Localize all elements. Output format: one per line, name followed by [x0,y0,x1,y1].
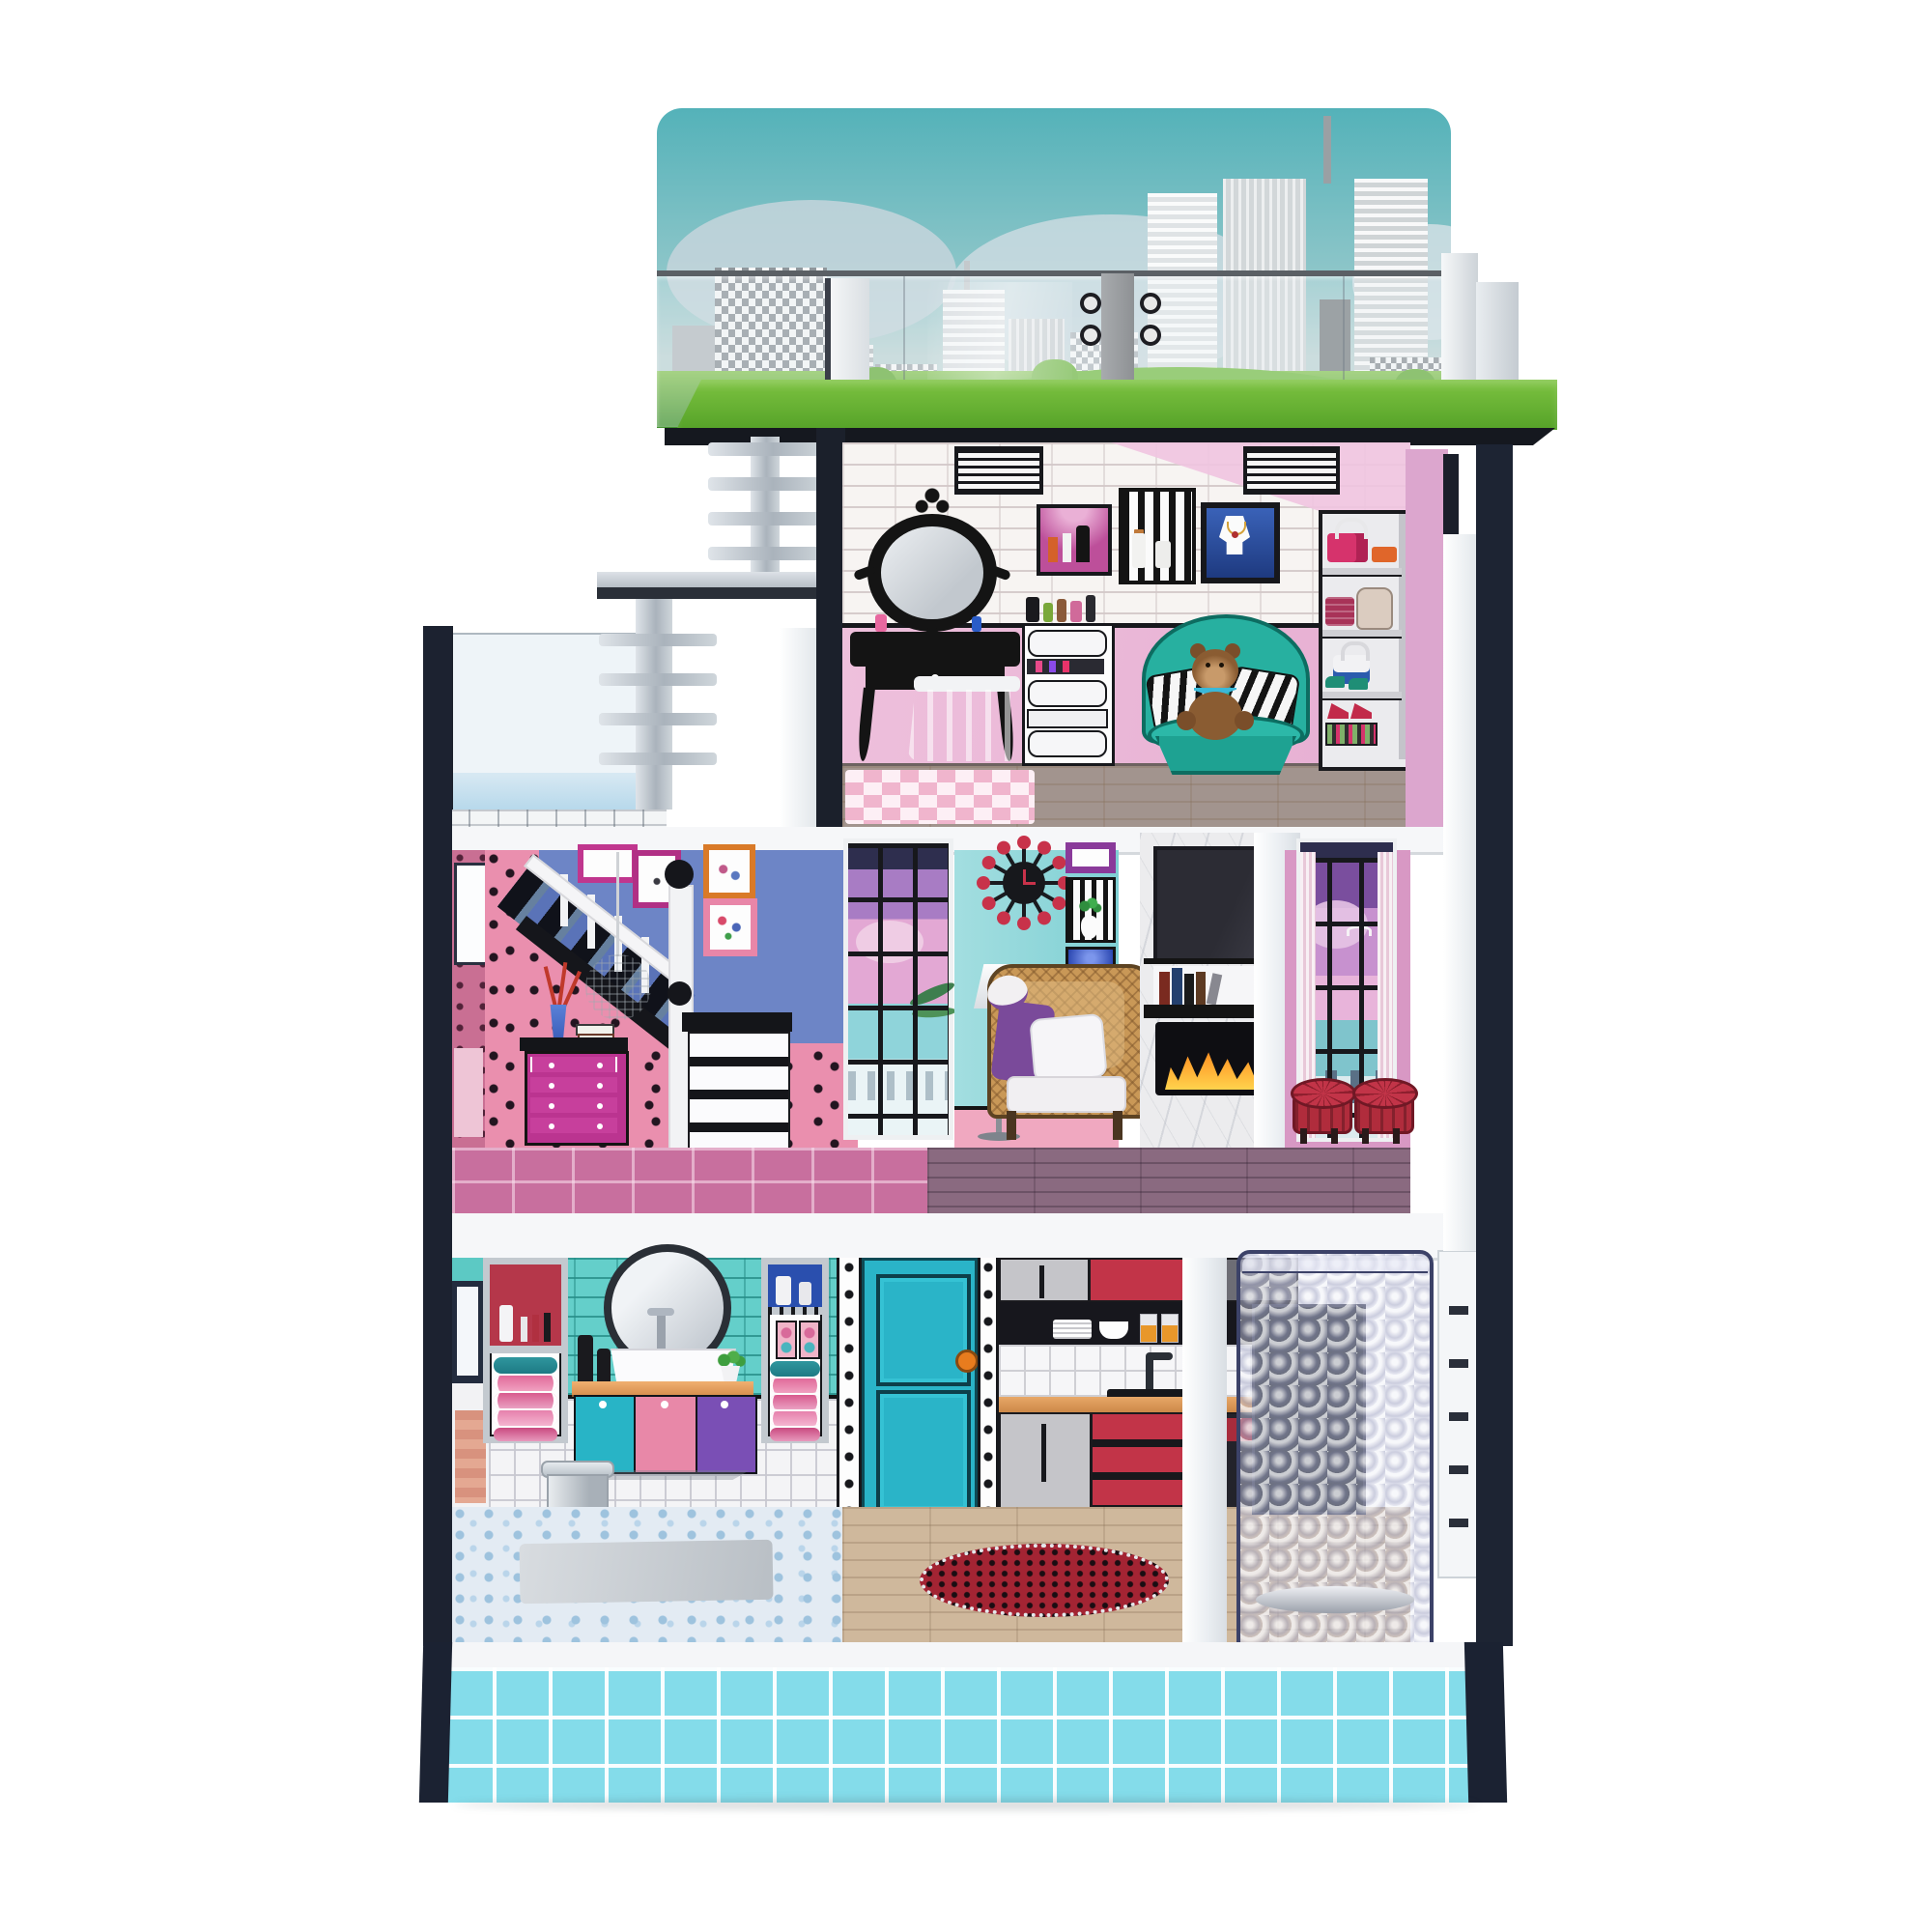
stool-seat [914,676,1020,692]
gate-hinge [1080,293,1101,314]
spray-can [799,1321,820,1359]
spray-can [776,1321,797,1359]
niche-shelf [768,1307,822,1315]
juice-glass [1140,1314,1157,1343]
pendant-cord [616,852,619,956]
toiletry-tube [499,1305,513,1342]
striped-shoebox [1325,723,1378,746]
deck-right-board [780,628,816,835]
perfume-bottle [1076,526,1090,562]
vanity-door-pink [634,1395,697,1474]
checkered-rug [845,770,1035,824]
teddy-eye [1206,663,1210,668]
red-drawers [1090,1414,1196,1507]
towel-roll-teal [770,1361,820,1377]
vanity-door-purple [696,1395,757,1474]
perfume-bottle [1048,537,1058,562]
side-peach-panel [455,1410,486,1503]
landing-platform-edge [597,587,823,599]
door-panel [876,1390,971,1514]
pink-tile-floor [452,1148,927,1213]
pump-bottle [776,1276,791,1305]
ceiling-vent [954,446,1043,495]
dresser-top [520,1037,628,1051]
towel-roll-pink [494,1393,557,1408]
teddy-paw [1177,711,1196,730]
ladder-rung [708,477,826,491]
chest-drawer [1028,630,1107,657]
ground-shadow [454,1799,1478,1810]
faucet-spout [647,1308,674,1316]
towel-roll-pink [494,1428,557,1441]
starburst-clock [983,844,1065,925]
stool-leg [1331,1128,1338,1144]
ladder-rung [708,512,826,526]
elevator-top-face [1242,1256,1428,1273]
side-wall-door [454,1048,483,1137]
book [1196,972,1206,1005]
front-post-ground [1182,1258,1227,1648]
dresser-drawer [530,1097,617,1113]
third-floor-right-wall [1406,449,1448,831]
kitchen-faucet [1146,1356,1153,1393]
tub-chair-base [1155,736,1296,775]
shelf-divider [1322,692,1402,700]
gate-hinge [1080,325,1101,346]
stool-tulle-skirt [908,690,1026,761]
vanity-clutter [972,616,981,632]
white-pillow [1029,1013,1107,1083]
bowl-stack [1099,1321,1128,1339]
landing-platform [597,572,823,587]
handbag-handle [1335,518,1368,539]
purple-wood-floor [927,1148,1410,1213]
bathroom-left-niche [483,1258,568,1443]
stair-cabinet [688,1032,790,1151]
cabinet-handle [1041,1424,1046,1482]
chest-clutter [1043,603,1053,622]
orange-clutch [1372,547,1397,562]
right-side-panel [1476,444,1513,1646]
book [1172,968,1182,1005]
juice-glass [1161,1314,1179,1343]
teal-sneaker [1325,676,1345,688]
stool-leg [1362,1128,1369,1144]
niche-picture [1065,842,1116,873]
armchair-leg [1113,1111,1122,1140]
niche-shelf [490,1346,561,1353]
kitchen-faucet-spout [1146,1352,1173,1360]
stool-leg [1300,1128,1307,1144]
stool-leg [1393,1128,1400,1144]
towel-roll-pink [770,1411,820,1426]
lipstick [544,1313,551,1342]
base-front [437,1667,1482,1803]
chest-clutter [1086,595,1095,622]
plant-vase [1081,916,1098,939]
elevator-side-rail [1437,1250,1480,1578]
towel-roll-pink [770,1378,820,1393]
red-dot-rug [920,1544,1169,1617]
vanity-clutter [875,614,887,632]
door-trim [837,1258,862,1519]
chest-drawer [1028,680,1107,707]
pump-bottle [799,1282,811,1305]
elevator-floor [1256,1586,1414,1613]
picture-frame-rose [703,898,757,956]
stair-cabinet-top [682,1012,792,1032]
dresser-knob [549,1063,554,1068]
dresser-drawer [530,1057,617,1072]
cabinet-handle [1039,1265,1044,1298]
teal-sneaker [1349,678,1368,690]
perfume-bottle [1155,541,1171,568]
side-wall-window [454,863,489,965]
window-grid [848,843,949,1135]
gate-hinge [1140,325,1161,346]
dresser-drawer [530,1118,617,1133]
beige-backpack [1356,587,1393,630]
picture-frame-orange [703,844,755,898]
ladder-rung [599,713,717,725]
towel-roll-pink [494,1410,557,1426]
door-panel [876,1274,971,1386]
plate-stack [1053,1320,1092,1339]
teddy-body [1188,692,1242,740]
elevator-front-rail [1443,534,1478,1251]
door-trim [978,1258,999,1519]
right-wall-slot [1443,454,1459,535]
ocean-window [843,838,953,1140]
deck-acrylic-tint [440,773,667,814]
teddy-paw [1235,711,1254,730]
nail-polish [1036,661,1042,672]
plant-leaves [1077,896,1102,916]
towel-roll-pink [494,1376,557,1391]
base-top-edge [435,1642,1484,1669]
seat-cushion [1007,1076,1126,1113]
clock-hand [1024,882,1036,885]
ladder-pole [636,599,672,810]
dollhouse-product-photo [0,0,1932,1932]
perfume-bottle [1063,533,1071,562]
chest-clutter [1070,601,1082,622]
disco-ball-lamp [585,954,651,1020]
ladder-rung [708,442,826,456]
kitchen-red-panel [1088,1260,1196,1300]
bathroom-right-niche [761,1258,829,1443]
ladder-rung [599,673,717,686]
grass-terrace [676,380,1557,430]
shelf-divider [1322,568,1402,577]
vanity-knob [599,1401,607,1408]
newel-ball [668,981,692,1006]
maroon-purse [1325,597,1354,626]
rail-slot [1449,1306,1468,1315]
book [1184,974,1194,1005]
towel-roll-pink [770,1428,820,1441]
picture-frame-pink [578,844,638,883]
ceiling-vent [1243,446,1340,495]
vanity-mirror-glass [881,526,983,619]
chest-clutter [1026,597,1039,622]
ladder-rung [708,547,826,560]
perfume-bottle [1132,533,1146,568]
side-window-pane [457,1287,478,1376]
ladder-rung [599,634,717,646]
teal-door [862,1258,978,1520]
door-knob [955,1350,979,1373]
antenna [1323,116,1331,184]
necklace-pendant [1232,531,1238,538]
lipstick [532,1315,539,1342]
faucet [657,1312,666,1350]
base-corner-right [1464,1642,1507,1803]
bath-mat [519,1540,773,1605]
shelf-divider [1322,630,1402,639]
base-corner-left [419,1642,452,1803]
nail-polish [1063,661,1069,672]
towel-roll-teal [494,1357,557,1374]
left-side-panel [423,626,452,1646]
towel-roll-pink [770,1395,820,1409]
lipstick [521,1317,527,1342]
newel-ball [665,860,694,889]
gate-hinge [1140,293,1161,314]
red-stool-top [1352,1078,1418,1109]
teddy-eye [1219,663,1224,668]
third-floor-left-wall [816,428,845,850]
handbag-handle [1341,641,1370,661]
nail-polish [1049,661,1056,672]
chest-drawer [1028,730,1107,757]
book [1159,972,1170,1005]
armchair-leg [1007,1111,1016,1140]
chest-open-shelf [1027,709,1108,728]
black-bottle [597,1349,611,1383]
red-stool-top [1291,1078,1356,1109]
ladder-rung [599,753,717,765]
chest-clutter [1057,599,1066,622]
dresser-drawer [530,1077,617,1093]
teddy-head [1192,649,1238,692]
perfume-niche-striped [1119,488,1196,584]
black-bottle [578,1335,593,1383]
vanity-table-top [850,632,1020,667]
